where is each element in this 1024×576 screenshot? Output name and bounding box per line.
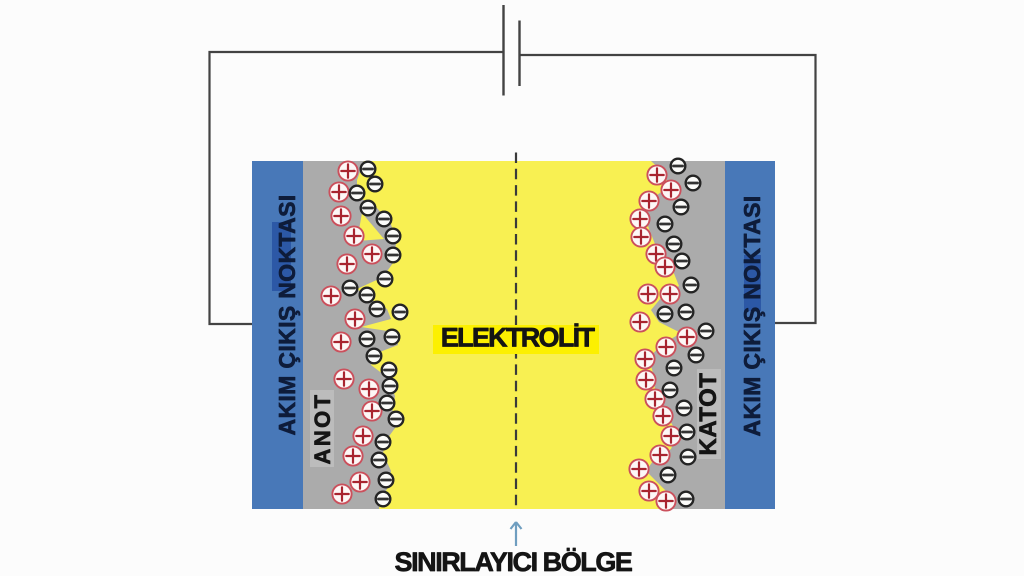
svg-text:KATOT: KATOT xyxy=(695,373,722,456)
svg-text:ELEKTROLİT: ELEKTROLİT xyxy=(441,323,596,353)
svg-text:AKIM ÇIKIŞ NOKTASI: AKIM ÇIKIŞ NOKTASI xyxy=(274,195,300,436)
svg-text:AKIM ÇIKIŞ NOKTASI: AKIM ÇIKIŞ NOKTASI xyxy=(739,196,765,437)
svg-text:ANOT: ANOT xyxy=(310,393,335,465)
svg-text:SINIRLAYICI BÖLGE: SINIRLAYICI BÖLGE xyxy=(395,547,632,576)
